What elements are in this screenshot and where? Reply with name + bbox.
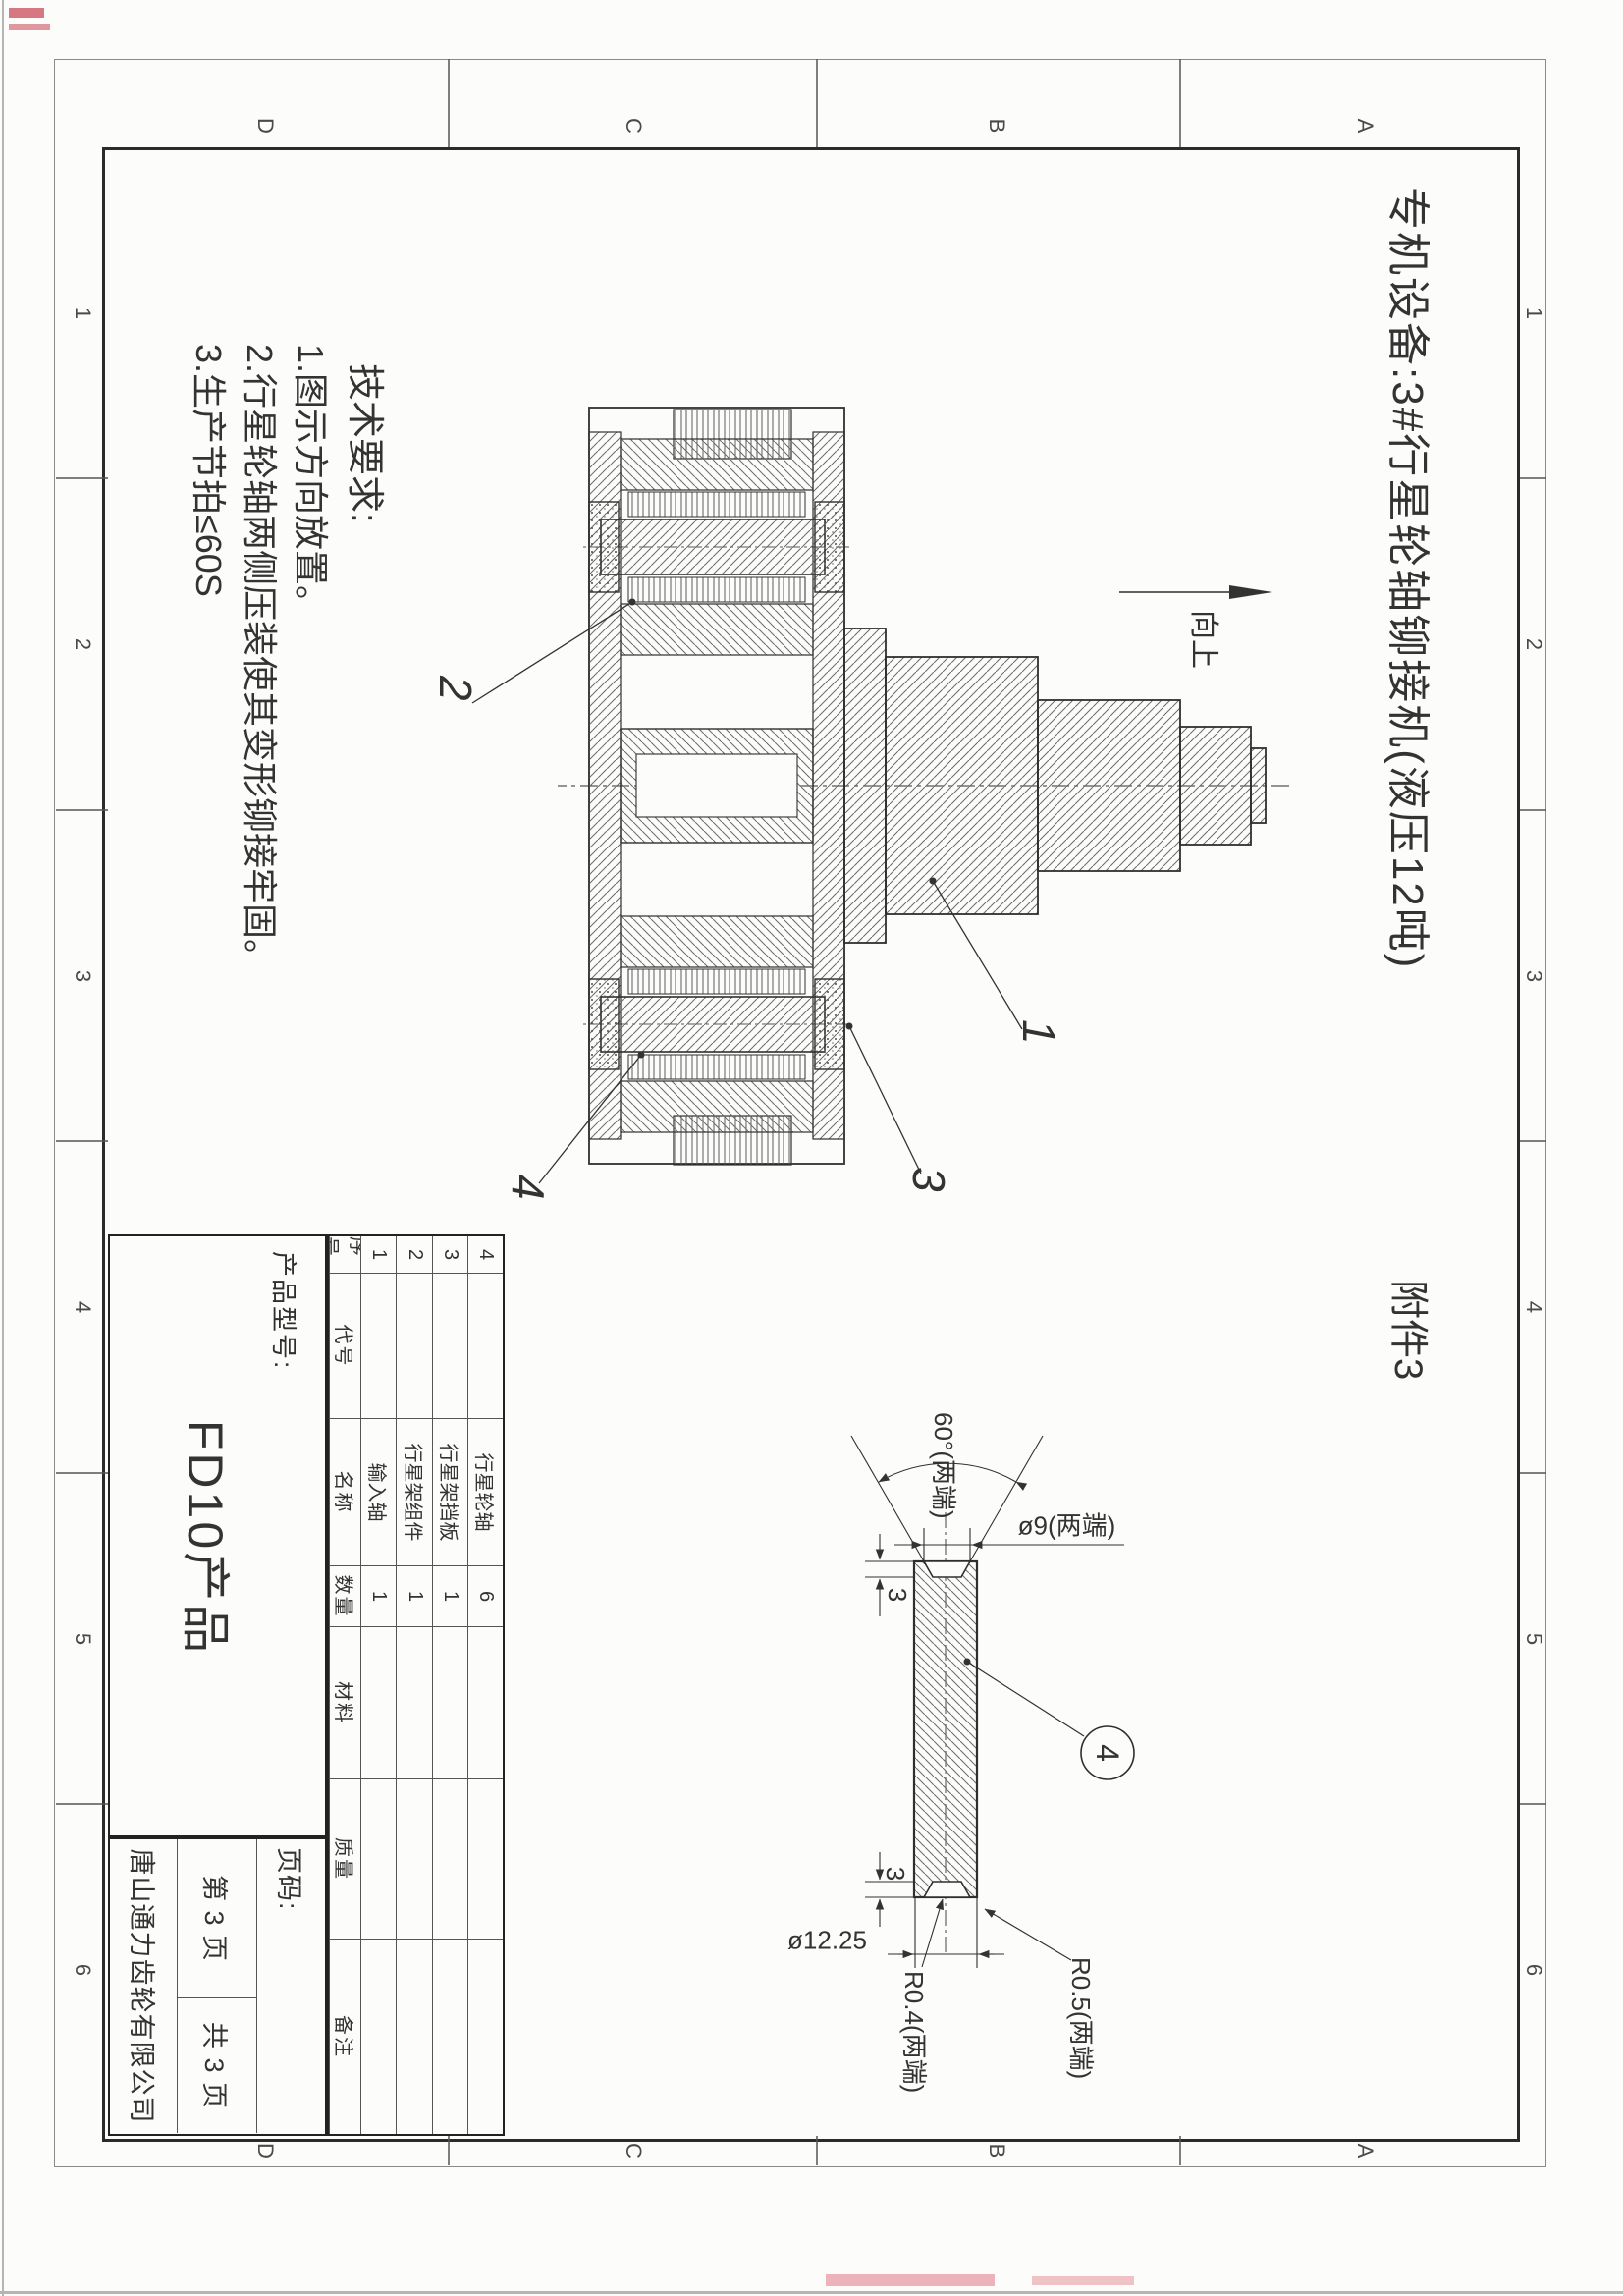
bom-cell — [467, 1940, 503, 2134]
bom-cell — [360, 1274, 396, 1419]
page-number-cell: 第 3 页 — [177, 1839, 256, 1998]
tech-requirement-1: 1.图示方向放置。 — [288, 344, 339, 621]
riveted-pin-end — [815, 979, 844, 1069]
input-shaft — [844, 629, 1266, 943]
bom-cell — [467, 1274, 503, 1419]
riveted-pin-end — [589, 502, 619, 592]
tech-requirement-3: 3.生产节拍≤60S — [186, 344, 237, 597]
red-scan-mark — [1032, 2276, 1134, 2285]
dim-pin-dia: ø12.25 — [763, 1926, 893, 1956]
planet-pin-section — [601, 519, 825, 574]
page-total-cell: 共 3 页 — [177, 1998, 256, 2133]
bom-header: 代号 — [329, 1274, 360, 1419]
bom-cell — [396, 1274, 431, 1419]
attachment-label: 附件3 — [1383, 1280, 1440, 1380]
bom-cell — [432, 1940, 467, 2134]
bom-cell: 1 — [360, 1236, 396, 1274]
tech-requirements-heading: 技术要求: — [342, 363, 396, 523]
page-label-cell: 页码: — [256, 1839, 325, 2133]
assembly-section-view — [472, 408, 1289, 1183]
riveted-pin-end — [589, 979, 619, 1069]
planet-column-left — [589, 439, 844, 655]
callout-4: 4 — [502, 1175, 555, 1200]
bom-header: 备注 — [329, 1940, 360, 2134]
dim-chamfer-right: 3 — [880, 1854, 910, 1893]
red-scan-mark — [9, 24, 50, 30]
bom-cell: 4 — [467, 1236, 503, 1274]
dim-angle: 60°(两端) — [927, 1412, 963, 1519]
bom-cell — [467, 1627, 503, 1779]
dim-radius-outer: R0.5(两端) — [1064, 1957, 1101, 2079]
bom-cell: 行星架挡板 — [432, 1419, 467, 1566]
balloon-item-number: 4 — [1089, 1733, 1125, 1773]
product-model-value: FD10产品 — [174, 1236, 244, 1839]
dim-radius-inner: R0.4(两端) — [897, 1971, 934, 2093]
drawing-sheet: 1 2 3 4 5 6 1 2 3 4 5 6 A B C D A B C D — [0, 0, 1623, 2296]
titleblock-model-box: 产品型号: FD10产品 — [108, 1234, 327, 1837]
bom-cell: 6 — [467, 1566, 503, 1627]
scan-edge-shadow — [2, 0, 4, 2296]
dim-mouth-dia: ø9(两端) — [1008, 1506, 1126, 1543]
bom-header: 名称 — [329, 1419, 360, 1566]
product-model-label: 产品型号: — [267, 1251, 303, 1370]
up-arrow — [1119, 585, 1272, 599]
r05-leader — [985, 1909, 1071, 1960]
bom-header: 质量 — [329, 1779, 360, 1940]
bom-cell: 行星轮轴 — [467, 1419, 503, 1566]
red-scan-mark — [826, 2274, 995, 2286]
company-name-cell: 唐山通力齿轮有限公司 — [111, 1839, 177, 2133]
drawing-title: 专机设备:3#行星轮轴铆接机(液压12吨) — [1380, 187, 1443, 969]
scan-edge-shadow — [0, 2291, 1623, 2294]
callout-2: 2 — [429, 676, 482, 701]
bom-cell: 3 — [432, 1236, 467, 1274]
titleblock-page-box: 页码: 第 3 页 共 3 页 唐山通力齿轮有限公司 — [108, 1837, 327, 2136]
bom-table: 4 行星轮轴 6 3 行星架挡板 1 2 行星架组件 1 1 输入轴 1 — [327, 1234, 505, 2136]
bom-header: 数量 — [329, 1566, 360, 1627]
scanned-drawing-page: 1 2 3 4 5 6 1 2 3 4 5 6 A B C D A B C D — [0, 0, 1623, 2296]
pin-body — [914, 1561, 977, 1897]
planet-column-right — [589, 916, 844, 1132]
bom-cell: 1 — [396, 1566, 431, 1627]
bom-cell — [467, 1779, 503, 1940]
countersink-left — [924, 1561, 970, 1577]
red-scan-mark — [9, 8, 44, 18]
bom-cell: 输入轴 — [360, 1419, 396, 1566]
bom-cell — [396, 1940, 431, 2134]
bom-cell — [360, 1627, 396, 1779]
bom-cell — [360, 1779, 396, 1940]
bom-cell: 行星架组件 — [396, 1419, 431, 1566]
riveted-pin-end — [815, 502, 844, 592]
bom-cell — [396, 1627, 431, 1779]
bom-cell — [432, 1274, 467, 1419]
bom-cell — [360, 1940, 396, 2134]
bom-header: 材料 — [329, 1627, 360, 1779]
callout-3: 3 — [902, 1167, 955, 1192]
r04-leader — [922, 1899, 943, 1967]
planet-pin-section — [601, 997, 825, 1052]
bom-cell — [432, 1779, 467, 1940]
tech-requirement-2: 2.行星轮轴两侧压装使其变形铆接牢固。 — [237, 344, 288, 974]
bom-cell: 1 — [432, 1566, 467, 1627]
bom-cell: 1 — [360, 1566, 396, 1627]
up-direction-label: 向上 — [1185, 610, 1228, 669]
dim-chamfer-left: 3 — [882, 1575, 912, 1614]
callout-1: 1 — [1012, 1019, 1065, 1045]
countersink-right — [924, 1882, 970, 1897]
bom-cell — [396, 1779, 431, 1940]
bom-cell: 2 — [396, 1236, 431, 1274]
bom-header: 序号 — [329, 1236, 360, 1274]
bom-cell — [432, 1627, 467, 1779]
hub-bore — [636, 754, 797, 817]
